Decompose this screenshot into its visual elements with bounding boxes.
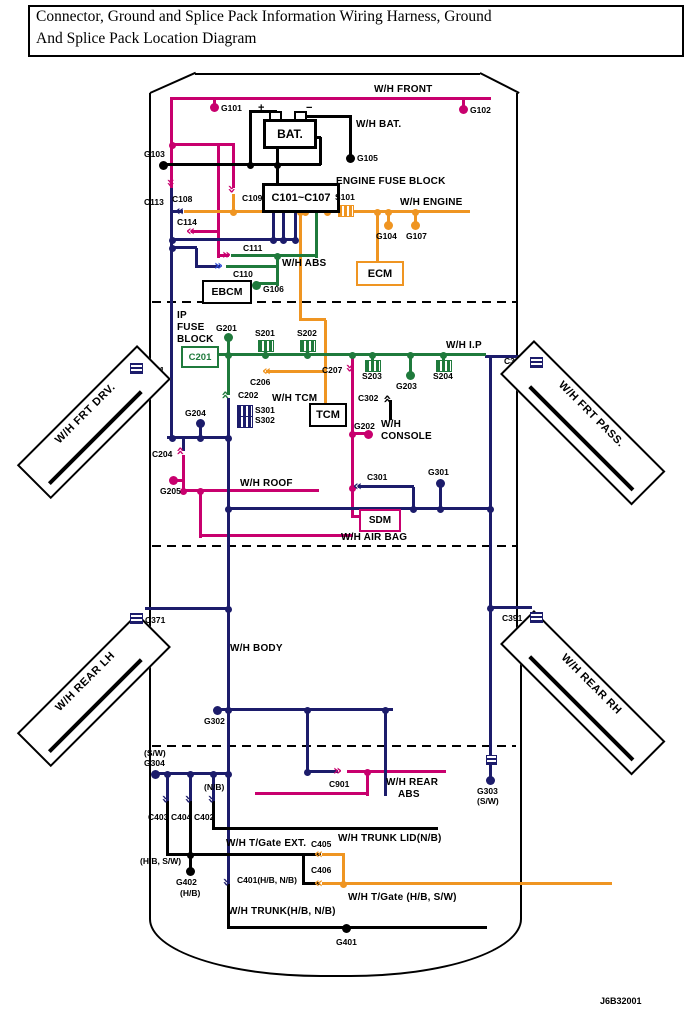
ground-dot-g104	[384, 221, 393, 230]
wire-wh-front	[171, 97, 491, 100]
junction-dot	[349, 352, 356, 359]
junction-dot	[187, 771, 194, 778]
connector-arrow-c406: »	[314, 876, 323, 890]
section-divider	[152, 745, 516, 747]
wire-wh-trunk-lid	[212, 827, 438, 830]
wire-wh-tgate	[322, 882, 612, 885]
junction-dot	[364, 769, 371, 776]
junction-dot	[225, 435, 232, 442]
label-c111: C111	[243, 244, 262, 253]
ground-dot-g203	[406, 371, 415, 380]
label-g302: G302	[204, 717, 225, 726]
bat-minus-sign: −	[306, 102, 312, 114]
wire-wh-air-bag	[199, 534, 353, 537]
ground-dot-g204	[196, 419, 205, 428]
label-wh-tcm: W/H TCM	[272, 393, 317, 404]
label-wh-rear-abs-1: W/H REAR	[386, 777, 438, 788]
ground-dot-g401	[342, 924, 351, 933]
label-g402-note: (H/B)	[180, 889, 200, 898]
label-wh-engine: W/H ENGINE	[400, 197, 463, 208]
connector-arrow-c204: »	[174, 446, 188, 455]
junction-dot	[197, 488, 204, 495]
label-g107: G107	[406, 232, 427, 241]
label-s203: S203	[362, 372, 382, 381]
label-c113: C113	[144, 198, 164, 207]
label-g202: G202	[354, 422, 375, 431]
junction-dot	[247, 162, 254, 169]
battery-box: BAT.	[263, 119, 317, 149]
ground-dot-g102	[459, 105, 468, 114]
label-c402-note: (N/B)	[204, 783, 224, 792]
label-c202: C202	[238, 391, 258, 400]
wire-segment	[249, 110, 252, 166]
ground-dot-g303	[486, 776, 495, 785]
junction-dot	[262, 352, 269, 359]
junction-dot	[180, 488, 187, 495]
junction-dot	[164, 771, 171, 778]
label-c301: C301	[367, 473, 387, 482]
junction-dot	[210, 771, 217, 778]
label-wh-ip: W/H I.P	[446, 340, 482, 351]
wire-segment	[163, 163, 321, 166]
car-outline-corner-left	[150, 72, 196, 94]
label-s302: S302	[255, 416, 275, 425]
label-g304-note: (S/W)	[144, 749, 166, 758]
connector-arrow-c207: »	[343, 363, 357, 372]
band-label: W/H REAR LH	[22, 619, 148, 745]
connector-arrow-c402: »	[205, 794, 219, 803]
junction-dot	[225, 506, 232, 513]
wire-segment	[171, 143, 235, 146]
label-g204: G204	[185, 409, 206, 418]
label-wh-trunk-lid: W/H TRUNK LID(N/B)	[338, 833, 442, 844]
connector-symbol-c371	[130, 613, 143, 624]
label-wh-rear-abs-2: ABS	[398, 789, 420, 800]
wiring-location-diagram: Connector, Ground and Splice Pack Inform…	[0, 0, 695, 1021]
junction-dot	[304, 707, 311, 714]
sdm-box: SDM	[359, 509, 401, 532]
junction-dot	[374, 209, 381, 216]
car-outline-top	[195, 73, 480, 75]
junction-dot	[274, 253, 281, 260]
connector-arrow-c206: »	[262, 364, 271, 378]
wire-wh-bat	[303, 115, 351, 118]
band-wh-rear-lh: W/H REAR LH	[17, 613, 171, 767]
junction-dot	[169, 142, 176, 149]
wire-segment	[302, 855, 305, 885]
connector-symbol-c361	[130, 363, 143, 374]
wire-segment	[217, 145, 220, 258]
label-c206: C206	[250, 378, 270, 387]
band-wh-frt-drv: W/H FRT DRV.	[17, 345, 171, 499]
wire-segment	[358, 485, 414, 488]
ground-dot-g402	[186, 867, 195, 876]
c201-box: C201	[181, 346, 219, 368]
label-wh-body: W/H BODY	[230, 643, 283, 654]
label-g106: G106	[263, 285, 284, 294]
junction-dot	[270, 237, 277, 244]
junction-dot	[369, 352, 376, 359]
junction-dot	[292, 237, 299, 244]
car-outline-corner-right	[480, 72, 520, 94]
splice-symbol-s201	[258, 340, 274, 352]
wire-segment	[199, 491, 202, 538]
label-g102: G102	[470, 106, 491, 115]
ground-dot-g105	[346, 154, 355, 163]
ecm-box: ECM	[356, 261, 404, 286]
wire-segment	[226, 265, 278, 268]
section-divider	[152, 545, 516, 547]
junction-dot	[169, 245, 176, 252]
junction-dot	[230, 209, 237, 216]
connector-arrow-c401: »	[220, 877, 234, 886]
band-wh-frt-pass: W/H FRT PASS.	[500, 340, 665, 505]
connector-arrow-c111: »	[222, 248, 231, 262]
band-label: W/H REAR RH	[523, 616, 660, 753]
junction-dot	[412, 209, 419, 216]
wire-segment	[166, 801, 169, 856]
label-wh-tgate-ext: W/H T/Gate EXT.	[226, 838, 306, 849]
band-label: W/H FRT PASS.	[523, 346, 660, 483]
label-c114: C114	[177, 218, 197, 227]
junction-dot	[410, 506, 417, 513]
label-g105: G105	[357, 154, 378, 163]
junction-dot	[197, 435, 204, 442]
label-c406: C406	[311, 866, 331, 875]
label-g201: G201	[216, 324, 237, 333]
wire-segment	[324, 320, 327, 404]
splice-symbol-s101	[338, 205, 354, 217]
label-ip-fuse-3: BLOCK	[177, 334, 214, 345]
wire-segment	[319, 137, 322, 165]
connector-arrow-c113: »	[164, 178, 178, 187]
label-c901: C901	[329, 780, 349, 789]
label-s101: S101	[335, 193, 355, 202]
ground-dot-g301	[436, 479, 445, 488]
ground-dot-g205	[169, 476, 178, 485]
junction-dot	[169, 435, 176, 442]
junction-dot	[304, 769, 311, 776]
ground-dot-g302	[213, 706, 222, 715]
junction-dot	[349, 431, 356, 438]
splice-symbol-s302	[237, 416, 253, 428]
wire-body-left-vertical	[170, 188, 173, 440]
label-c391: C391	[502, 614, 522, 623]
junction-dot	[274, 162, 281, 169]
label-ip-fuse-1: IP	[177, 310, 187, 321]
connector-arrow-c108: »	[175, 204, 184, 218]
junction-dot	[382, 707, 389, 714]
label-g103: G103	[144, 150, 165, 159]
connector-arrow-c403: »	[159, 794, 173, 803]
doc-number: J6B32001	[600, 997, 642, 1007]
label-c109: C109	[242, 194, 262, 203]
connector-symbol-c391	[530, 612, 543, 623]
wire-segment	[489, 606, 532, 609]
label-c403: C403	[148, 813, 168, 822]
ground-dot-g202	[364, 430, 373, 439]
wire-segment	[191, 230, 218, 233]
junction-dot	[440, 352, 447, 359]
connector-arrow-c302: »	[381, 394, 395, 403]
label-wh-console-2: CONSOLE	[381, 431, 432, 442]
label-g402: G402	[176, 878, 197, 887]
label-g401: G401	[336, 938, 357, 947]
connector-arrow-c202: »	[219, 390, 233, 399]
connector-symbol	[486, 755, 497, 765]
label-s204: S204	[433, 372, 453, 381]
label-g304: G304	[144, 759, 165, 768]
junction-dot	[280, 237, 287, 244]
junction-dot	[187, 852, 194, 859]
label-c204: C204	[152, 450, 172, 459]
label-wh-roof: W/H ROOF	[240, 478, 293, 489]
label-ip-fuse-2: FUSE	[177, 322, 204, 333]
label-g303: G303	[477, 787, 498, 796]
label-c302: C302	[358, 394, 378, 403]
label-s202: S202	[297, 329, 317, 338]
label-c405: C405	[311, 840, 331, 849]
junction-dot	[304, 352, 311, 359]
engine-fuse-block-box: C101~C107	[262, 183, 340, 213]
wire-segment	[145, 607, 229, 610]
label-s201: S201	[255, 329, 275, 338]
label-g101: G101	[221, 104, 242, 113]
label-wh-front: W/H FRONT	[374, 84, 432, 95]
wire-body-right-vertical	[489, 357, 492, 780]
wire-body-main-vertical	[227, 398, 230, 884]
label-tgate-ext-note: (H/B, S/W)	[140, 857, 181, 866]
ebcm-box: EBCM	[202, 280, 252, 304]
junction-dot	[169, 237, 176, 244]
connector-arrow-c404: »	[182, 794, 196, 803]
tcm-box: TCM	[309, 403, 347, 427]
label-g303-note: (S/W)	[477, 797, 499, 806]
page-title-line1: Connector, Ground and Splice Pack Inform…	[36, 8, 492, 26]
connector-arrow-c901: »	[333, 764, 342, 778]
ground-dot-g107	[411, 221, 420, 230]
junction-dot	[225, 606, 232, 613]
wire-wh-trunk	[227, 926, 487, 929]
wire-segment	[255, 792, 368, 795]
label-c401: C401(H/B, N/B)	[237, 876, 297, 885]
connector-symbol-c381	[530, 357, 543, 368]
label-wh-tgate: W/H T/Gate (H/B, S/W)	[348, 892, 457, 903]
connector-arrow-c109: »	[225, 184, 239, 193]
junction-dot	[487, 506, 494, 513]
label-c110: C110	[233, 270, 253, 279]
wire-segment	[306, 710, 309, 773]
label-g104: G104	[376, 232, 397, 241]
wire-segment	[232, 145, 235, 188]
label-c108: C108	[172, 195, 192, 204]
junction-dot	[385, 209, 392, 216]
bat-plus-sign: +	[258, 102, 264, 114]
label-s301: S301	[255, 406, 275, 415]
label-g205: G205	[160, 487, 181, 496]
wire-segment	[349, 115, 352, 157]
ground-dot-g304	[151, 770, 160, 779]
wire-segment	[315, 210, 318, 258]
label-wh-abs: W/H ABS	[282, 258, 326, 269]
label-c402: C402	[194, 813, 214, 822]
label-wh-bat: W/H BAT.	[356, 119, 401, 130]
ground-dot-g101	[210, 103, 219, 112]
junction-dot	[437, 506, 444, 513]
junction-dot	[225, 352, 232, 359]
label-g301: G301	[428, 468, 449, 477]
junction-dot	[225, 771, 232, 778]
wire-segment	[227, 355, 230, 395]
wire-wh-rear-abs	[347, 770, 446, 773]
wire-segment	[299, 318, 326, 321]
connector-arrow-c110: »	[214, 259, 223, 273]
label-engine-fuse-block: ENGINE FUSE BLOCK	[336, 176, 446, 187]
label-c207: C207	[322, 366, 342, 375]
ground-dot-g106	[252, 281, 261, 290]
label-wh-trunk: W/H TRUNK(H/B, N/B)	[228, 906, 336, 917]
junction-dot	[225, 707, 232, 714]
wire-segment	[266, 370, 326, 373]
label-wh-console-1: W/H	[381, 419, 401, 430]
connector-arrow-c301: »	[353, 479, 362, 493]
junction-dot	[340, 881, 347, 888]
ground-dot-g103	[159, 161, 168, 170]
junction-dot	[487, 605, 494, 612]
page-title-line2: And Splice Pack Location Diagram	[36, 30, 256, 48]
splice-symbol-s202	[300, 340, 316, 352]
label-c404: C404	[171, 813, 191, 822]
label-g203: G203	[396, 382, 417, 391]
junction-dot	[407, 352, 414, 359]
ground-dot-g201	[224, 333, 233, 342]
band-wh-rear-rh: W/H REAR RH	[500, 610, 665, 775]
label-wh-air-bag: W/H AIR BAG	[341, 532, 407, 543]
